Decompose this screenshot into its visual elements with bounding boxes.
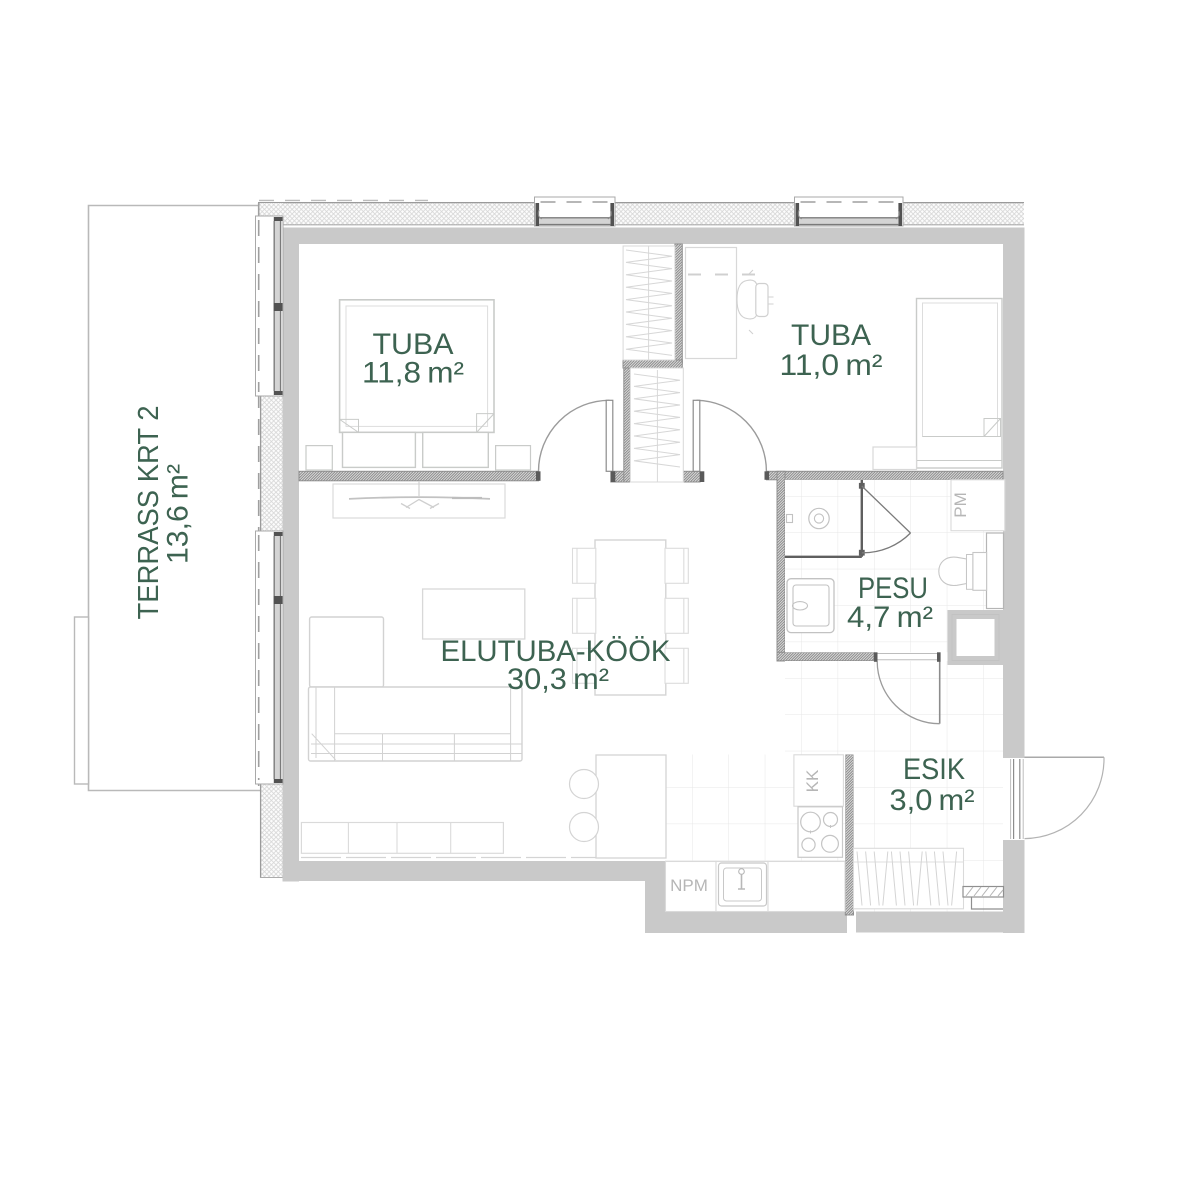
svg-text:13,6 m²: 13,6 m²: [162, 464, 195, 564]
svg-text:30,3 m²: 30,3 m²: [507, 663, 609, 696]
svg-text:KK: KK: [803, 769, 822, 792]
svg-text:TERRASS KRT 2: TERRASS KRT 2: [133, 406, 165, 620]
svg-text:4,7 m²: 4,7 m²: [847, 601, 933, 634]
svg-text:11,0 m²: 11,0 m²: [780, 349, 883, 382]
svg-text:NPM: NPM: [670, 876, 708, 895]
svg-text:PM: PM: [951, 492, 970, 518]
svg-text:ESIK: ESIK: [903, 753, 965, 786]
svg-text:11,8 m²: 11,8 m²: [362, 357, 464, 390]
svg-text:3,0 m²: 3,0 m²: [890, 784, 975, 817]
svg-text:TUBA: TUBA: [791, 319, 871, 352]
